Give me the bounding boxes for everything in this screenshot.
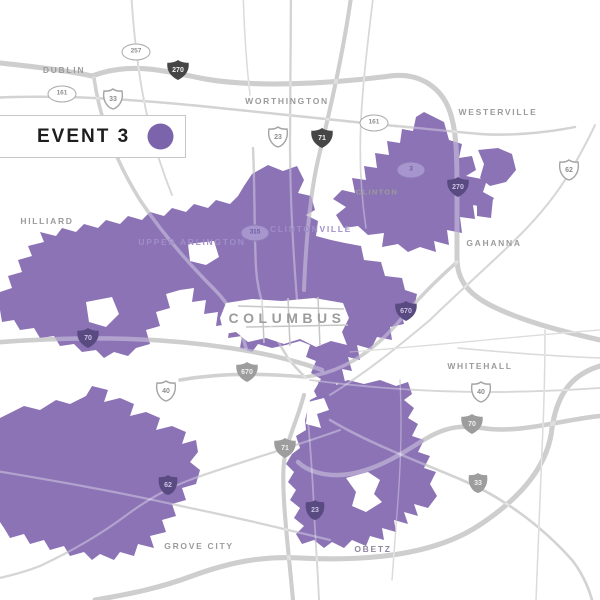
route-shield-us33-nw-icon: 33 <box>102 88 124 110</box>
route-shield-i270-east-icon: 270 <box>446 176 470 198</box>
route-shield-sr315-icon: 315 <box>241 225 270 242</box>
route-shield-us62-ne-icon: 62 <box>558 159 580 181</box>
city-label-gahanna: GAHANNA <box>466 238 521 248</box>
route-shield-us62-sw-icon: 62 <box>157 474 179 496</box>
city-label-worthington: WORTHINGTON <box>245 96 329 106</box>
route-shield-us40-east-icon: 40 <box>470 381 492 403</box>
city-label-dublin: DUBLIN <box>43 65 85 75</box>
city-label-westerville: WESTERVILLE <box>459 107 538 117</box>
event-region <box>478 148 516 186</box>
city-label-upper-arlington: UPPER ARLINGTON <box>138 237 245 247</box>
route-shield-i70-west-icon: 70 <box>76 327 100 349</box>
event-region <box>477 196 493 218</box>
city-label-grove-city: GROVE CITY <box>164 541 233 551</box>
route-shield-sr257-icon: 257 <box>122 44 151 61</box>
route-shield-us33-se-icon: 33 <box>467 472 489 494</box>
route-shield-i71-south-icon: 71 <box>273 437 297 459</box>
city-label-clinton: CLINTON <box>356 188 398 197</box>
legend: EVENT 3 <box>0 115 186 158</box>
city-label-hilliard: HILLIARD <box>20 216 73 226</box>
city-label-obetz: OBETZ <box>354 544 391 554</box>
route-shield-i270-nw-icon: 270 <box>166 59 190 81</box>
route-shield-i670-west-icon: 670 <box>235 361 259 383</box>
route-shield-us23-north-icon: 23 <box>267 126 289 148</box>
city-label-whitehall: WHITEHALL <box>447 361 512 371</box>
columbus-road-map <box>0 0 600 600</box>
route-shield-i71-north-icon: 71 <box>310 127 334 149</box>
route-shield-i70-east-icon: 70 <box>460 413 484 435</box>
map-canvas: DUBLIN WORTHINGTON WESTERVILLE HILLIARD … <box>0 0 600 600</box>
route-shield-sr161-west-icon: 161 <box>48 86 77 103</box>
route-shield-us40-west-icon: 40 <box>155 380 177 402</box>
legend-title: EVENT 3 <box>37 126 130 148</box>
city-label-columbus: COLUMBUS <box>229 310 346 326</box>
route-shield-us23-south-icon: 23 <box>304 499 326 521</box>
city-label-clintonville: CLINTONVILLE <box>270 224 352 234</box>
route-shield-sr161-east-icon: 161 <box>360 115 389 132</box>
route-shield-i670-east-icon: 670 <box>394 300 418 322</box>
legend-event-swatch-icon <box>147 123 174 150</box>
route-shield-sr3-icon: 3 <box>397 162 426 179</box>
